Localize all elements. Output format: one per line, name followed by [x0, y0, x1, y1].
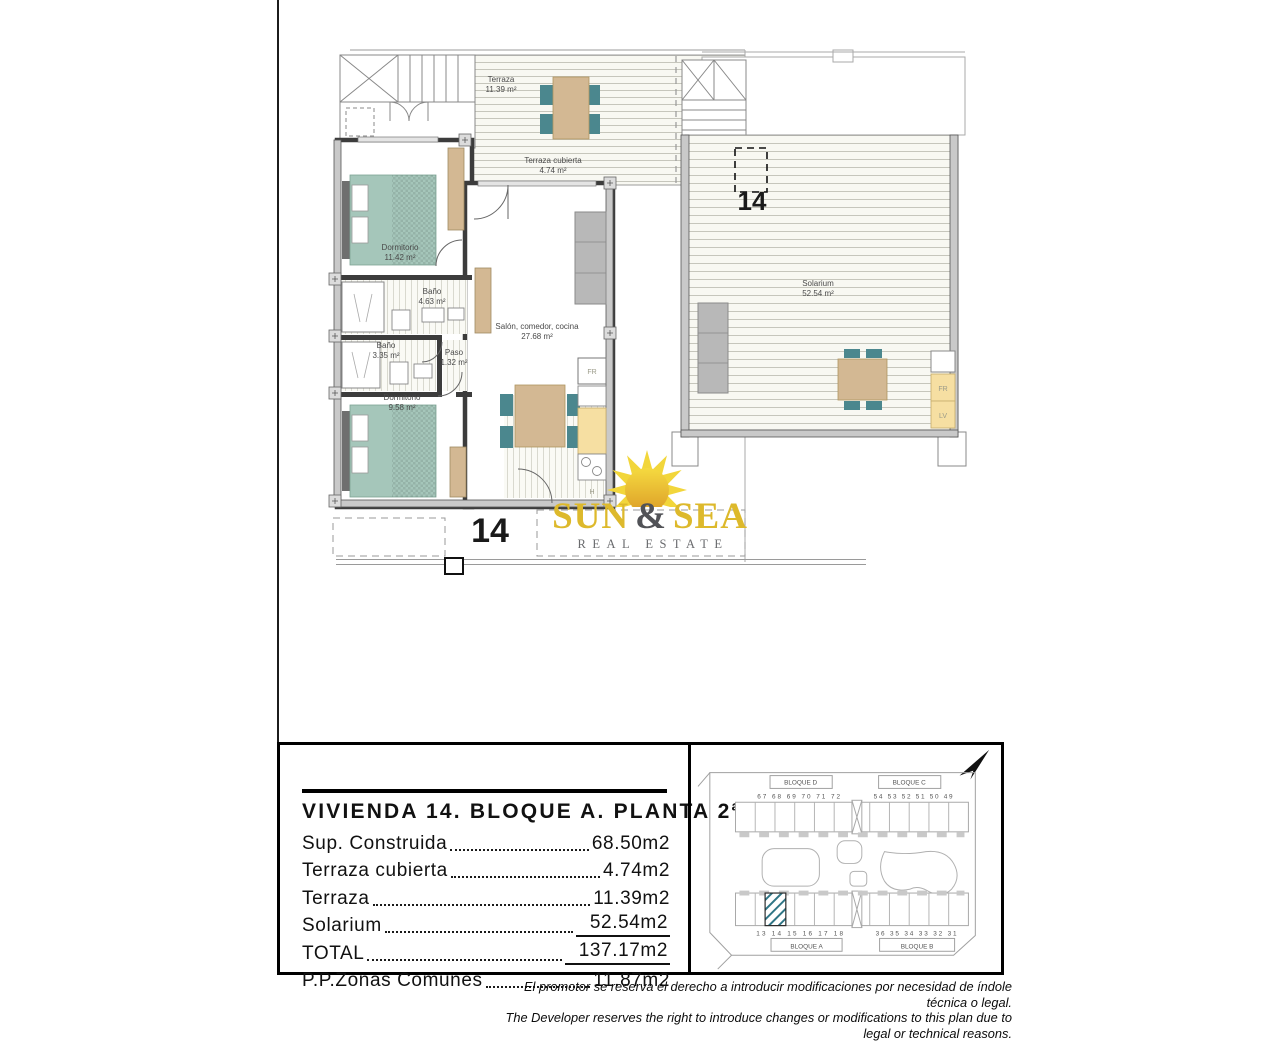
bloque-d-label: BLOQUE D: [784, 779, 817, 786]
area-summary: VIVIENDA 14. BLOQUE A. PLANTA 2ª Sup. Co…: [302, 789, 670, 992]
summary-title: VIVIENDA 14. BLOQUE A. PLANTA 2ª: [302, 800, 670, 824]
summary-row-label: Sup. Construida: [302, 833, 447, 855]
brand-logo: SUN&SEA REAL ESTATE: [545, 448, 755, 552]
brand-name: SUN&SEA: [545, 500, 755, 534]
summary-row-label: Solarium: [302, 915, 382, 937]
title-block-panel: VIVIENDA 14. BLOQUE A. PLANTA 2ª Sup. Co…: [277, 742, 1004, 975]
room-area-bano-2: 3.35 m²: [372, 351, 399, 360]
fridge-label-solarium: FR: [938, 386, 947, 393]
room-label-bano-1: Baño: [423, 287, 442, 296]
summary-row-label: Terraza: [302, 888, 370, 910]
summary-row: TOTAL137.17m2: [302, 937, 670, 965]
leader-dots: [385, 931, 573, 933]
room-area-paso: 1.32 m²: [440, 358, 467, 367]
summary-row-label: Terraza cubierta: [302, 860, 448, 882]
summary-row: Solarium52.54m2: [302, 910, 670, 938]
bloque-d-units: 67 68 69 70 71 72: [757, 793, 840, 800]
room-label-terraza-cubierta: Terraza cubierta: [524, 156, 582, 165]
summary-row: Terraza11.39m2: [302, 882, 670, 910]
fridge-label: FR: [587, 369, 596, 376]
room-area-terraza-cubierta: 4.74 m²: [539, 166, 566, 175]
room-label-dormitorio-1: Dormitorio: [382, 243, 419, 252]
summary-row-value: 11.39m2: [593, 888, 670, 910]
highlighted-unit: [765, 893, 786, 926]
leader-dots: [451, 876, 600, 878]
floor-plan-solarium: Solarium 52.54 m² FR LV 14: [668, 48, 968, 468]
summary-row: Terraza cubierta4.74m2: [302, 855, 670, 883]
leader-dots: [373, 904, 591, 906]
summary-row-value: 137.17m2: [565, 940, 670, 965]
brand-tagline: REAL ESTATE: [551, 537, 755, 552]
room-label-solarium: Solarium: [802, 279, 834, 288]
brand-sea: SEA: [673, 496, 748, 537]
bloque-b-units: 36 35 34 33 32 31: [876, 930, 957, 937]
frame-border-line: [277, 0, 279, 742]
room-area-terraza: 11.39 m²: [486, 85, 517, 94]
room-area-dormitorio-1: 11.42 m²: [385, 253, 416, 262]
room-label-salon: Salón, comedor, cocina: [495, 322, 579, 331]
north-arrow-icon: [960, 750, 990, 780]
bloque-a-label: BLOQUE A: [790, 943, 823, 950]
panel-divider: [688, 745, 691, 972]
leader-dots: [367, 959, 561, 961]
summary-row-value: 68.50m2: [592, 833, 670, 855]
stairs: [340, 55, 475, 148]
summary-rule: [302, 789, 667, 793]
disclaimer: El promotor se reserva el derecho a intr…: [500, 979, 1012, 1041]
summary-row-value: 52.54m2: [576, 912, 670, 937]
disclaimer-en: The Developer reserves the right to intr…: [500, 1010, 1012, 1041]
site-base-line: [336, 559, 866, 565]
disclaimer-es: El promotor se reserva el derecho a intr…: [500, 979, 1012, 1010]
unit-number-main: 14: [471, 512, 509, 550]
dishwasher-label-solarium: LV: [939, 413, 947, 420]
site-base-marker: [444, 557, 464, 575]
bloque-c-label: BLOQUE C: [893, 779, 926, 786]
bloque-a-units: 13 14 15 16 17 18: [756, 930, 843, 937]
summary-row-value: 4.74m2: [603, 860, 670, 882]
room-label-terraza: Terraza: [488, 75, 515, 84]
unit-number-solarium: 14: [738, 186, 767, 216]
room-label-paso: Paso: [445, 348, 464, 357]
site-amenities: [762, 841, 957, 895]
room-label-dormitorio-2: Dormitorio: [384, 393, 421, 402]
summary-row-label: TOTAL: [302, 943, 364, 965]
room-area-dormitorio-2: 9.58 m²: [388, 403, 415, 412]
site-blocks-top: [735, 776, 968, 835]
site-plan: BLOQUE D BLOQUE C 67 68 69 70 71 72 54 5…: [692, 745, 1005, 972]
brand-sun: SUN: [552, 496, 629, 537]
room-area-bano-1: 4.63 m²: [418, 297, 445, 306]
bloque-b-label: BLOQUE B: [901, 943, 934, 950]
room-area-solarium: 52.54 m²: [802, 289, 834, 298]
summary-row-label: P.P.Zonas Comunes: [302, 970, 483, 992]
leader-dots: [450, 849, 589, 851]
site-blocks-bottom: [735, 891, 968, 951]
page: { "brand": { "sun": "SUN", "ampersand": …: [0, 0, 1280, 1024]
room-label-bano-2: Baño: [377, 341, 396, 350]
brand-ampersand: &: [629, 496, 673, 537]
room-area-salon: 27.68 m²: [521, 332, 553, 341]
bloque-c-units: 54 53 52 51 50 49: [874, 793, 953, 800]
summary-row: Sup. Construida68.50m2: [302, 827, 670, 855]
